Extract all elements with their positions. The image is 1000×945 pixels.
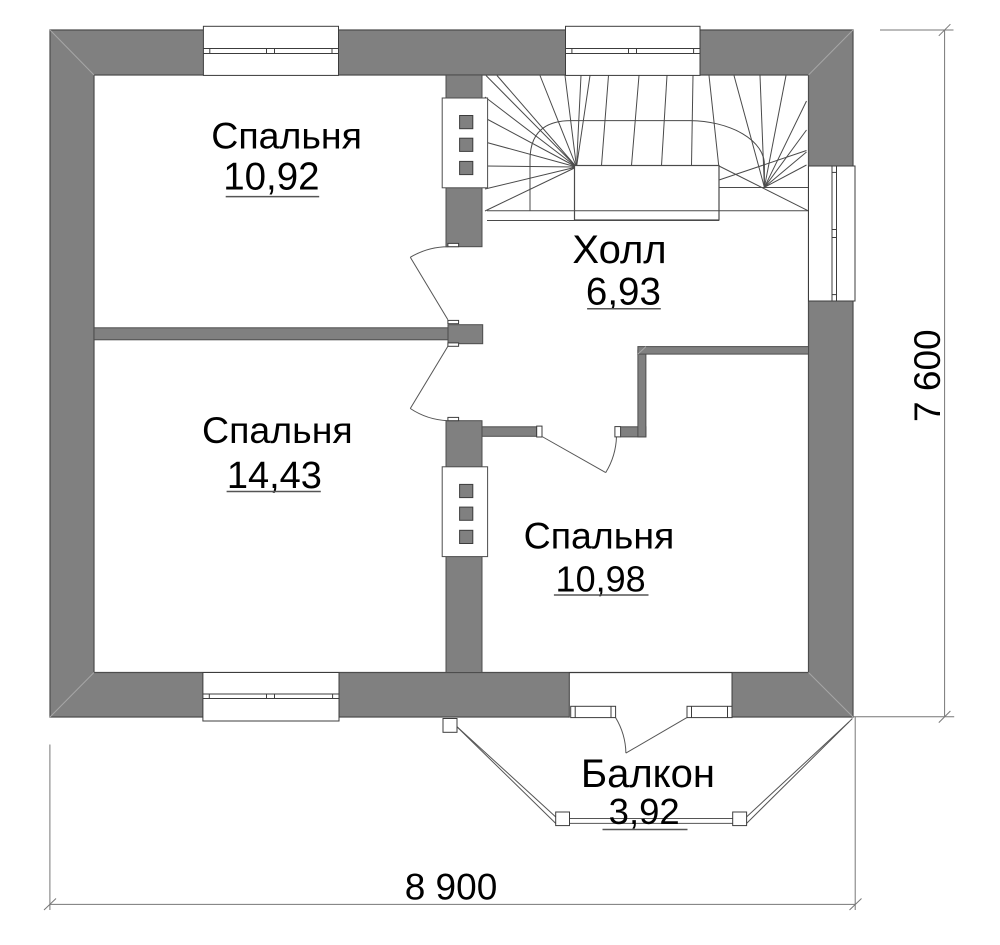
svg-text:3,92: 3,92: [609, 791, 680, 832]
svg-text:10,98: 10,98: [556, 558, 646, 599]
svg-text:Холл: Холл: [572, 228, 666, 272]
svg-text:14,43: 14,43: [227, 455, 322, 497]
svg-text:Балкон: Балкон: [581, 752, 715, 796]
svg-text:Спальня: Спальня: [211, 114, 362, 156]
svg-text:7 600: 7 600: [907, 329, 948, 422]
svg-text:10,92: 10,92: [223, 155, 319, 198]
svg-text:6,93: 6,93: [586, 271, 661, 314]
svg-text:8 900: 8 900: [405, 867, 498, 908]
svg-text:Спальня: Спальня: [524, 515, 675, 557]
svg-text:Спальня: Спальня: [202, 409, 353, 451]
